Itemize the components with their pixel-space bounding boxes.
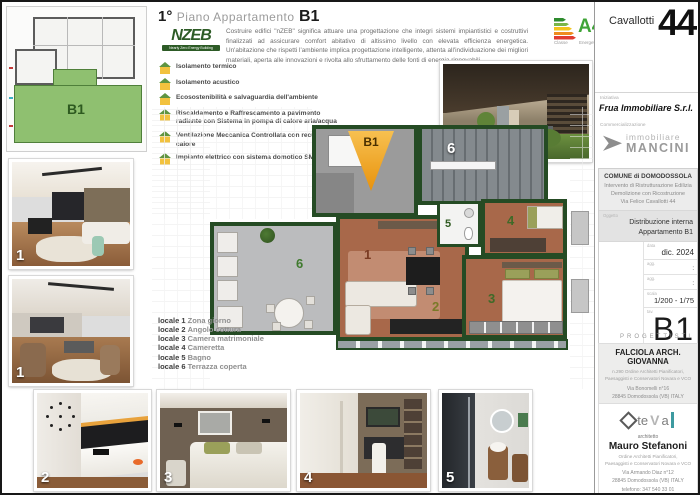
feature-text: Isolamento termico: [176, 63, 236, 72]
terrace-cushion: [217, 280, 238, 301]
plan-sideboard: [378, 221, 440, 229]
terrace-chair: [304, 320, 313, 329]
cad-background: [570, 107, 597, 389]
drawing-title-block: COMUNE di DOMODOSSOLA Intervento di Rist…: [598, 168, 698, 351]
person: [100, 345, 120, 375]
order-line: Paesaggisti e Conservatori Novara e VCO: [601, 376, 695, 383]
progettisti-label: PROGETTISTI: [620, 334, 693, 340]
architect-name: Mauro Stefanoni: [601, 441, 695, 452]
feature-item: Isolamento termico: [160, 63, 345, 74]
energy-label-classe: Classe: [554, 40, 568, 45]
plan-step: [316, 173, 354, 213]
photo-kitchen: 2: [34, 390, 151, 491]
photo-number: 5: [446, 469, 454, 486]
feature-text: Ecosostenibilità e salvaguardia dell'amb…: [176, 94, 318, 103]
street-number: 44: [658, 2, 695, 44]
nzeb-logo: NZEB Nearly Zero Energy Building: [162, 27, 220, 57]
feature-item: Ecosostenibilità e salvaguardia dell'amb…: [160, 94, 345, 105]
plan-chair: [408, 287, 416, 295]
field-data: data dic. 2024: [643, 242, 697, 260]
project-line: Demolizione con Ricostruzione: [601, 190, 695, 198]
plan-dining-table: [406, 257, 440, 285]
field-agg2: agg. :: [643, 275, 697, 290]
field-value: :: [647, 281, 694, 287]
energy-bar: [554, 27, 572, 31]
address-line: 28845 Domodossola (VB) ITALY: [601, 394, 695, 402]
architect-stefanoni-block: te V a architetto Mauro Stefanoni Ordine…: [598, 403, 698, 495]
address-line: Via Bonomelli n°16: [601, 386, 695, 394]
legend-label: locale 4: [158, 343, 186, 352]
wood-floor: [37, 477, 148, 488]
teval-text: a: [661, 413, 668, 428]
mancini-name: MANCINI: [626, 142, 690, 155]
legend-name: Camera matrimoniale: [188, 334, 264, 343]
page-title: 1° Piano Appartamento B1: [158, 8, 319, 26]
terrace-cushion: [217, 232, 238, 253]
photo-number: 6: [447, 140, 455, 157]
photo-bathroom: 5: [439, 390, 532, 491]
legend-name: Angolo cottura: [188, 325, 241, 334]
project-address: Via Felice Cavallotti 44: [601, 198, 695, 206]
plan-pillow: [505, 269, 530, 279]
miniplan-mark: [9, 97, 13, 99]
plan-toilet: [464, 227, 473, 240]
plan-balcony: [571, 279, 589, 313]
energy-bar: [554, 36, 576, 40]
title-floor: 1°: [158, 8, 172, 25]
mancini-logo: immobiliare MANCINI: [603, 132, 690, 155]
plan-chair: [408, 247, 416, 255]
plan-pillow: [528, 207, 537, 228]
photo-living-1: 1: [9, 159, 133, 269]
room-number-kitchen: 2: [432, 299, 439, 314]
legend-label: locale 2: [158, 325, 186, 334]
energy-bar: [554, 23, 569, 27]
eco-house-icon: [160, 67, 170, 74]
eco-house-icon: [160, 98, 170, 105]
legend-name: Bagno: [188, 353, 211, 362]
field-value: dic. 2024: [647, 248, 694, 257]
field-agg1: agg. :: [643, 260, 697, 275]
legend-label: locale 1: [158, 316, 186, 325]
legend-label: locale 5: [158, 353, 186, 362]
energy-bar: [554, 32, 574, 36]
plan-desk: [490, 238, 546, 252]
sink-bowl: [490, 442, 506, 452]
b1-marker-label: B1: [348, 135, 394, 149]
photo-number: 3: [164, 469, 172, 486]
photo-number: 2: [41, 469, 49, 486]
feature-text: Isolamento acustico: [176, 79, 239, 88]
comune-name: COMUNE di DOMODOSSOLA: [601, 173, 695, 180]
plant: [518, 413, 528, 427]
miniplan-line: [33, 45, 135, 46]
teval-studio-logo: te V a: [601, 407, 695, 433]
round-mirror: [490, 409, 514, 433]
plan-pillow: [534, 269, 559, 279]
iniziativa-label: Iniziativa: [600, 96, 619, 101]
cooktop: [93, 449, 109, 455]
cad-background: [152, 107, 312, 219]
eco-house-icon: [160, 83, 170, 90]
room-number-cameretta: 4: [507, 213, 514, 228]
plan-balcony: [571, 211, 589, 245]
phone-line: telefono: 347 540 33 01: [601, 487, 695, 495]
commercializzazione-label: Commercializzazione: [600, 123, 646, 128]
bookshelf: [404, 399, 422, 469]
room-number-living: 1: [364, 247, 371, 262]
plan-sofa: [345, 305, 371, 335]
room-number-bath: 5: [445, 218, 451, 230]
nzeb-logo-word: NZEB: [162, 27, 220, 45]
terrace-cushion: [217, 256, 238, 277]
person: [92, 236, 104, 256]
legend-row: locale 2 Angolo cottura: [158, 325, 264, 334]
sofa: [82, 222, 130, 244]
title-middle: Piano Appartamento: [177, 10, 295, 24]
photo-number: 1: [16, 247, 24, 264]
plan-bathroom: 5: [437, 201, 481, 247]
mancini-arrow-icon: [603, 134, 622, 153]
title-unit: B1: [299, 8, 319, 25]
pillow: [204, 442, 230, 454]
room-legend: locale 1 Zona giorno locale 2 Angolo cot…: [158, 316, 264, 371]
iniziativa-company: Frua Immobiliare S.r.l.: [599, 103, 693, 113]
plan-bedroom: 3: [462, 255, 567, 339]
legend-row: locale 5 Bagno: [158, 353, 264, 362]
miniplan-mark: [9, 125, 13, 127]
field-scala: scala 1/200 - 1/75: [643, 290, 697, 308]
legend-label: locale 3: [158, 334, 186, 343]
feature-item: Isolamento acustico: [160, 79, 345, 90]
room-number-terrace: 6: [296, 256, 303, 271]
energy-arrows-icon: [554, 18, 574, 40]
tv: [30, 317, 64, 333]
dining-set: [28, 218, 52, 234]
street-name: Cavallotti: [609, 15, 654, 27]
kitchen-niche: [52, 192, 84, 220]
teval-text: V: [650, 412, 659, 428]
plan-chair: [426, 287, 434, 295]
miniplan-walls: [15, 49, 57, 85]
oggetto-line: Appartamento B1: [603, 228, 693, 237]
plan-double-bed: [502, 280, 562, 326]
legend-label: locale 6: [158, 362, 186, 371]
plan-stairwell: [418, 125, 548, 205]
order-line: n.290 Ordine Architetti Pianificatori,: [601, 369, 695, 376]
order-line: Ordine Architetti Pianificatori,: [601, 454, 695, 461]
wood-floor: [300, 473, 427, 488]
sheet-number: B1: [647, 314, 694, 344]
terrace-chair: [272, 322, 281, 331]
legend-name: Zona giorno: [188, 316, 231, 325]
miniplan-b1-label: B1: [67, 101, 85, 117]
energy-bar: [554, 18, 566, 22]
photo-cameretta: 4: [297, 390, 430, 491]
field-value: 1/200 - 1/75: [647, 296, 694, 305]
pillow: [236, 442, 262, 454]
cabinet: [512, 454, 528, 482]
wall-clock: [59, 415, 62, 418]
divider: [595, 92, 700, 93]
terrace-plant: [260, 228, 275, 243]
nzeb-logo-tagline: Nearly Zero Energy Building: [162, 45, 220, 51]
plan-cameretta: 4: [481, 199, 567, 257]
overview-floor-plan: B1: [6, 6, 147, 152]
field-value: :: [647, 266, 694, 272]
tv: [366, 407, 400, 427]
address-line: 28845 Domodossola (VB) ITALY: [601, 478, 695, 486]
plan-kitchen-counter: [390, 319, 467, 334]
framed-picture: [198, 411, 232, 435]
miniplan-mark: [9, 67, 13, 69]
sconce: [174, 423, 182, 427]
plan-stair-landing: [430, 161, 496, 170]
oggetto-line: Distribuzione interna: [603, 218, 693, 227]
terrace-chair: [266, 304, 275, 313]
photo-living-2: 1: [9, 276, 133, 386]
photo-number: 4: [304, 469, 312, 486]
plan-sink: [464, 208, 474, 218]
legend-name: Terrazza coperta: [188, 362, 247, 371]
order-line: Paesaggisti e Conservatori Novara e VCO: [601, 461, 695, 468]
teval-teal-bar: [671, 412, 674, 428]
plan-chair: [426, 247, 434, 255]
bowl: [133, 459, 143, 465]
legend-row: locale 1 Zona giorno: [158, 316, 264, 325]
legend-row: locale 4 Cameretta: [158, 343, 264, 352]
plan-wardrobe: [469, 321, 563, 334]
presentation-board: B1 1° Piano Appartamento B1 NZEB Nearly …: [0, 0, 700, 495]
teval-text: te: [637, 413, 648, 428]
architect-role: architetto: [601, 434, 695, 440]
ceiling: [160, 393, 287, 408]
sconce: [262, 419, 270, 423]
photo-number: 1: [16, 364, 24, 381]
project-description: COMUNE di DOMODOSSOLA Intervento di Rist…: [599, 169, 697, 211]
photo-bedroom: 3: [157, 390, 290, 491]
address-line: Via Armando Diaz n°12: [601, 470, 695, 478]
miniplan-line: [102, 17, 103, 79]
mancini-wordmark: immobiliare MANCINI: [626, 132, 690, 155]
coffee-table: [64, 341, 94, 353]
legend-row: locale 3 Camera matrimoniale: [158, 334, 264, 343]
title-block-sidebar: Cavallotti 44 Iniziativa Frua Immobiliar…: [594, 2, 700, 493]
terrace-chair: [306, 296, 315, 305]
oggetto-section: Oggetto Distribuzione interna Appartamen…: [599, 211, 697, 242]
legend-name: Cameretta: [188, 343, 225, 352]
teval-diamond-icon: [620, 411, 638, 429]
plan-window-strip: [336, 339, 568, 350]
legend-row: locale 6 Terrazza coperta: [158, 362, 264, 371]
nzeb-description: Costruire edifici "nZEB" significa attua…: [226, 27, 528, 65]
shower-glass: [468, 397, 470, 489]
room-number-bedroom: 3: [488, 291, 495, 306]
plan-headboard: [502, 262, 562, 268]
project-line: Intervento di Ristrutturazione Edilizia: [601, 182, 695, 190]
architect-name: FALCIOLA ARCH. GIOVANNA: [601, 348, 695, 366]
